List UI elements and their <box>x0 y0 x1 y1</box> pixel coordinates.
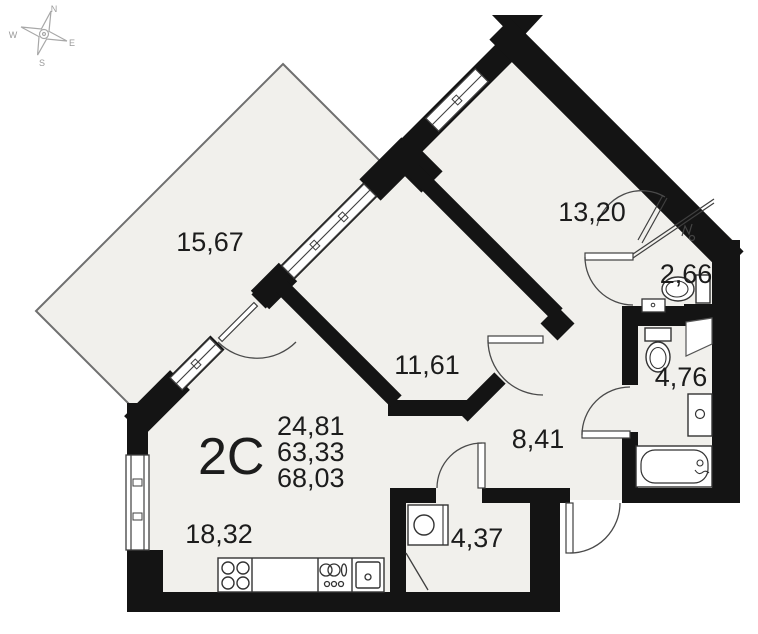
total-area-value: 68,03 <box>277 463 345 493</box>
window-left-wall <box>126 455 149 550</box>
floor-plan-page: N E S W 15,67 13,20 2,66 11,61 4,76 8,41… <box>0 0 758 634</box>
room-label-kitchen: 18,32 <box>185 519 253 549</box>
compass-east-label: E <box>69 38 75 48</box>
washing-machine-bathroom-icon <box>688 394 712 436</box>
compass-south-label: S <box>39 58 45 68</box>
room-label-hallway: 8,41 <box>512 424 565 454</box>
room-label-storage: 4,37 <box>451 523 504 553</box>
room-label-loggia: 15,67 <box>176 227 244 257</box>
compass-north-label: N <box>51 4 58 14</box>
room-label-bathroom: 4,76 <box>655 362 708 392</box>
bathtub-icon <box>636 446 712 487</box>
washbasin-icon <box>642 299 665 312</box>
floor-plan-drawing: N E S W 15,67 13,20 2,66 11,61 4,76 8,41… <box>0 0 758 634</box>
washing-machine-icon <box>408 505 448 545</box>
compass-west-label: W <box>9 30 18 40</box>
room-label-room13: 13,20 <box>558 197 626 227</box>
room-label-wc: 2,66 <box>660 259 713 289</box>
room-label-room11: 11,61 <box>394 350 460 380</box>
kitchen-sink-icon <box>356 562 380 588</box>
unit-type-label: 2C <box>198 428 264 486</box>
